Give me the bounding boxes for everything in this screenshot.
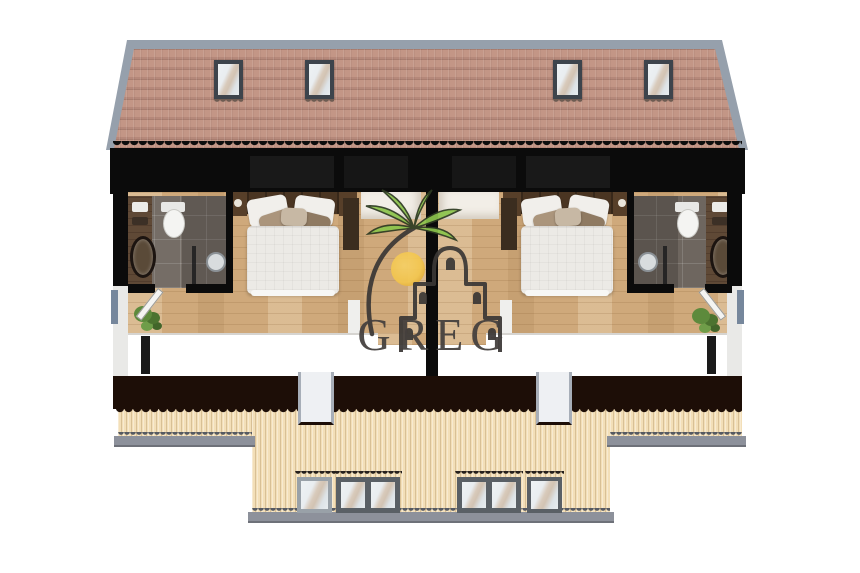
bathroom-right-bottom-wall-a xyxy=(627,284,674,293)
towels-left xyxy=(132,202,148,212)
void-stub-right xyxy=(707,336,716,374)
bathroom-left-bottom-wall-a xyxy=(128,284,155,293)
tray-left xyxy=(132,217,148,225)
sun-icon xyxy=(391,252,425,286)
window-pane xyxy=(462,482,486,508)
tray-right xyxy=(712,217,728,225)
pillow xyxy=(281,207,308,226)
skylight-icon xyxy=(305,60,334,99)
facade-window-pair-right xyxy=(457,477,521,513)
bed-left-duvet xyxy=(247,226,339,294)
bathroom-left-side-wall xyxy=(226,192,233,292)
toilet-bowl-left xyxy=(163,209,185,238)
void-stub-left xyxy=(141,336,150,374)
skylight-icon xyxy=(553,60,582,99)
bathroom-right-side-wall xyxy=(627,192,634,292)
toilet-bowl-right xyxy=(677,209,699,238)
bathroom-right-shadow xyxy=(630,196,678,288)
palm-tree-icon xyxy=(366,190,460,240)
bathroom-right-bottom-wall-b xyxy=(705,284,732,293)
skylight-glass xyxy=(557,64,578,95)
attic-panel xyxy=(250,156,334,188)
skylight-glass xyxy=(648,64,669,95)
shower-glass-right xyxy=(663,246,667,286)
plant-right xyxy=(692,308,710,324)
brand-text: GREG xyxy=(352,312,516,358)
bed-left-foot xyxy=(251,290,335,296)
window-pane xyxy=(371,482,395,508)
plinth-right xyxy=(607,436,746,447)
lamp-left-a xyxy=(234,199,242,207)
floor-plan-rendering: GREG xyxy=(0,0,860,573)
plinth-center xyxy=(248,512,614,523)
facade-window-pair-left xyxy=(336,477,400,513)
siding-top-scallops xyxy=(116,408,742,417)
window-pane xyxy=(492,482,516,508)
skylight-glass xyxy=(218,64,239,95)
facade-window-single-left xyxy=(297,477,332,513)
lamp-right-b xyxy=(618,199,626,207)
round-mirror-left xyxy=(130,236,156,278)
window-cut-right xyxy=(737,290,744,324)
roof-notch-left xyxy=(298,372,334,425)
window-pane xyxy=(341,482,365,508)
bed-right-duvet xyxy=(521,226,613,294)
window-cut-left xyxy=(111,290,118,324)
skylight-flashing xyxy=(644,99,673,105)
attic-panel xyxy=(526,156,610,188)
shower-glass-left xyxy=(192,246,196,286)
skylight-flashing xyxy=(214,99,243,105)
roof-notch-right xyxy=(536,372,572,425)
bathroom-left-bottom-wall-b xyxy=(186,284,233,293)
towels-right xyxy=(712,202,728,212)
skylight-glass xyxy=(309,64,330,95)
skylight-icon xyxy=(214,60,243,99)
plinth-left xyxy=(114,436,255,447)
bed-right-foot xyxy=(525,290,609,296)
skylight-flashing xyxy=(553,99,582,105)
bathroom-left-shadow xyxy=(182,196,230,288)
outer-wall-right xyxy=(727,148,742,288)
shower-head-right xyxy=(638,252,658,272)
front-cut-band xyxy=(113,376,742,409)
skylight-flashing xyxy=(305,99,334,105)
pillow xyxy=(555,207,582,226)
shower-head-left xyxy=(206,252,226,272)
outer-wall-left xyxy=(113,148,128,288)
facade-window-single-right xyxy=(527,477,562,513)
skylight-icon xyxy=(644,60,673,99)
